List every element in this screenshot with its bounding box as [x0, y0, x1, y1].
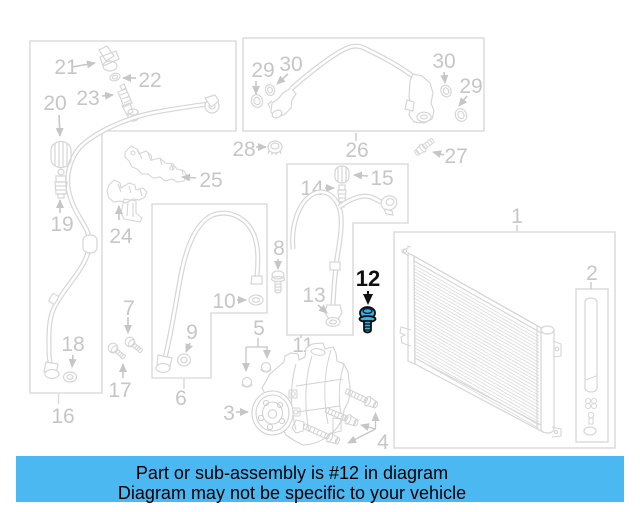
svg-text:30: 30	[279, 53, 302, 76]
svg-text:4: 4	[377, 431, 389, 454]
svg-text:Diagram may not be specific to: Diagram may not be specific to your vehi…	[118, 483, 466, 503]
svg-text:8: 8	[273, 237, 285, 260]
svg-text:27: 27	[444, 145, 467, 168]
svg-text:29: 29	[459, 75, 482, 98]
svg-text:23: 23	[76, 87, 99, 110]
svg-text:13: 13	[302, 284, 325, 307]
svg-text:22: 22	[138, 69, 161, 92]
svg-text:19: 19	[50, 213, 73, 236]
svg-text:10: 10	[212, 290, 235, 313]
svg-text:2: 2	[586, 262, 598, 285]
svg-text:28: 28	[232, 138, 255, 161]
svg-text:Part or sub-assembly is #12 in: Part or sub-assembly is #12 in diagram	[136, 463, 448, 483]
svg-text:26: 26	[345, 139, 368, 162]
svg-text:21: 21	[54, 56, 77, 79]
svg-text:7: 7	[123, 297, 135, 320]
svg-text:25: 25	[199, 169, 222, 192]
svg-text:1: 1	[511, 205, 523, 228]
svg-text:3: 3	[223, 402, 235, 425]
svg-text:20: 20	[43, 92, 66, 115]
svg-text:5: 5	[253, 317, 265, 340]
svg-text:18: 18	[61, 333, 84, 356]
svg-text:29: 29	[251, 59, 274, 82]
svg-text:16: 16	[51, 405, 74, 428]
svg-text:30: 30	[432, 50, 455, 73]
svg-text:17: 17	[108, 379, 131, 402]
svg-text:24: 24	[109, 225, 133, 248]
svg-text:15: 15	[370, 167, 393, 190]
svg-text:9: 9	[186, 321, 198, 344]
svg-text:12: 12	[356, 266, 380, 291]
svg-text:6: 6	[175, 387, 187, 410]
